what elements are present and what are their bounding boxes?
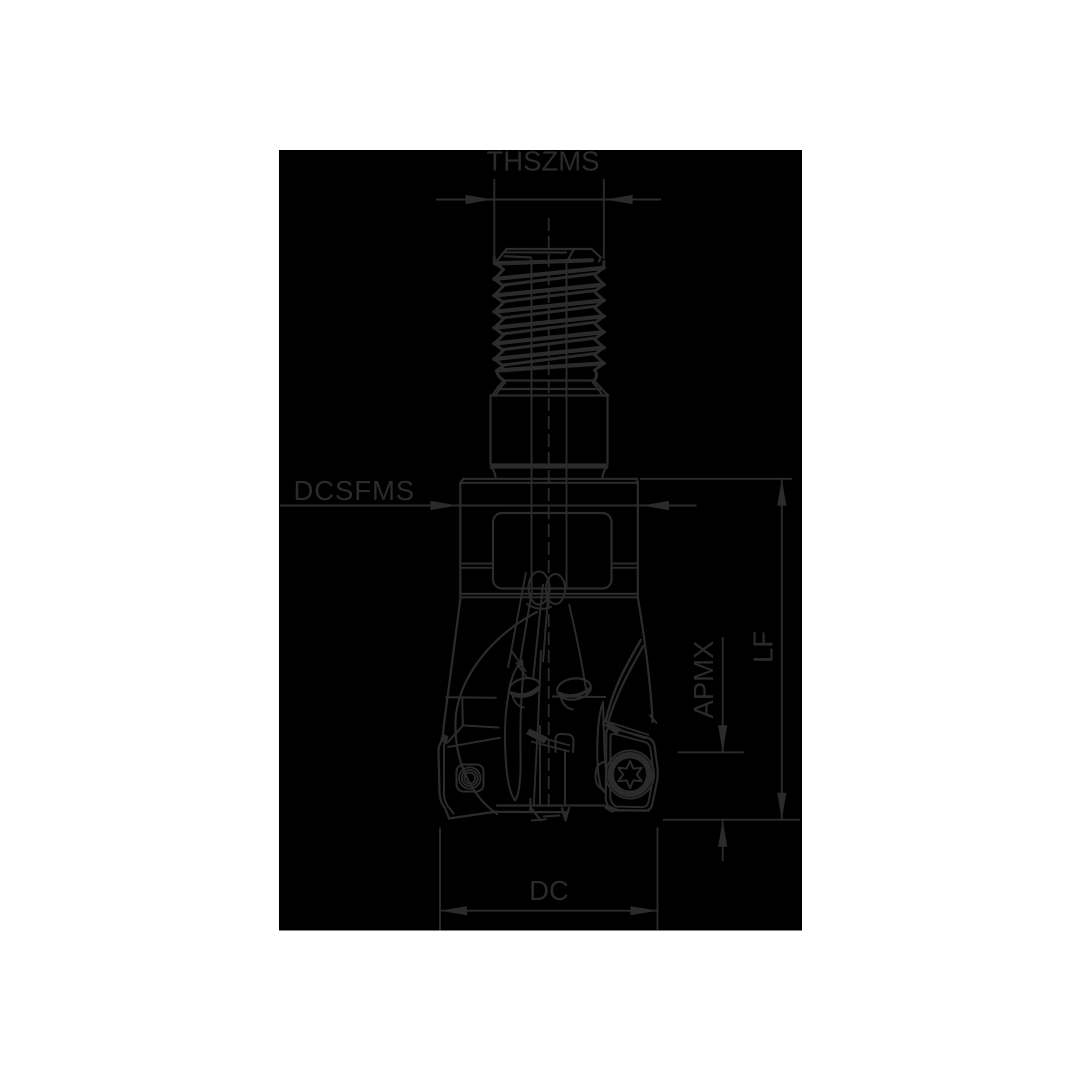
svg-text:DCSFMS: DCSFMS — [294, 475, 416, 506]
svg-text:THSZMS: THSZMS — [486, 146, 599, 177]
svg-text:APMX: APMX — [688, 641, 719, 719]
svg-text:LF: LF — [748, 631, 779, 663]
svg-text:DC: DC — [529, 875, 569, 906]
